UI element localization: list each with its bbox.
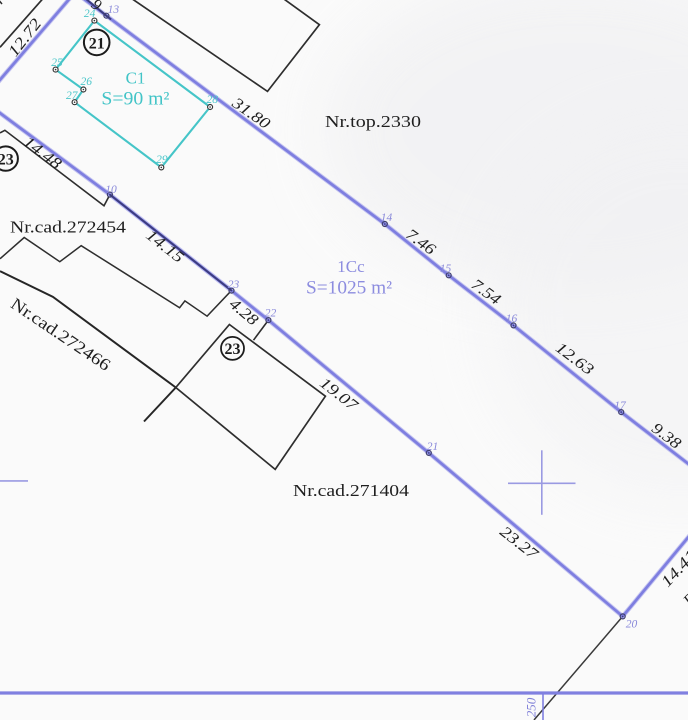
svg-text:14: 14 xyxy=(381,212,393,224)
svg-text:Nr.cad.272454: Nr.cad.272454 xyxy=(10,218,127,237)
svg-text:250: 250 xyxy=(524,697,539,717)
svg-text:25: 25 xyxy=(51,57,63,69)
svg-text:28: 28 xyxy=(207,94,219,106)
svg-text:S=1025 m²: S=1025 m² xyxy=(306,278,392,299)
svg-text:16: 16 xyxy=(506,313,518,325)
svg-text:15: 15 xyxy=(440,263,452,275)
svg-text:29: 29 xyxy=(156,154,168,166)
svg-text:17: 17 xyxy=(614,400,627,412)
svg-text:27: 27 xyxy=(66,90,79,102)
svg-text:23: 23 xyxy=(225,341,241,358)
svg-text:C1: C1 xyxy=(126,69,146,88)
svg-text:S=90 m²: S=90 m² xyxy=(101,89,169,110)
svg-text:26: 26 xyxy=(80,76,92,88)
svg-text:Nr.top.2330: Nr.top.2330 xyxy=(325,112,421,131)
svg-text:Nr.cad.271404: Nr.cad.271404 xyxy=(293,481,410,500)
svg-text:13: 13 xyxy=(108,4,120,16)
svg-text:20: 20 xyxy=(626,619,638,631)
svg-text:23: 23 xyxy=(228,279,240,291)
svg-text:21: 21 xyxy=(89,35,105,52)
svg-text:23: 23 xyxy=(0,152,14,169)
svg-text:10: 10 xyxy=(105,184,117,196)
svg-text:24: 24 xyxy=(84,8,96,20)
svg-text:1Cc: 1Cc xyxy=(337,257,365,276)
svg-text:22: 22 xyxy=(265,308,277,320)
svg-text:21: 21 xyxy=(427,441,439,453)
